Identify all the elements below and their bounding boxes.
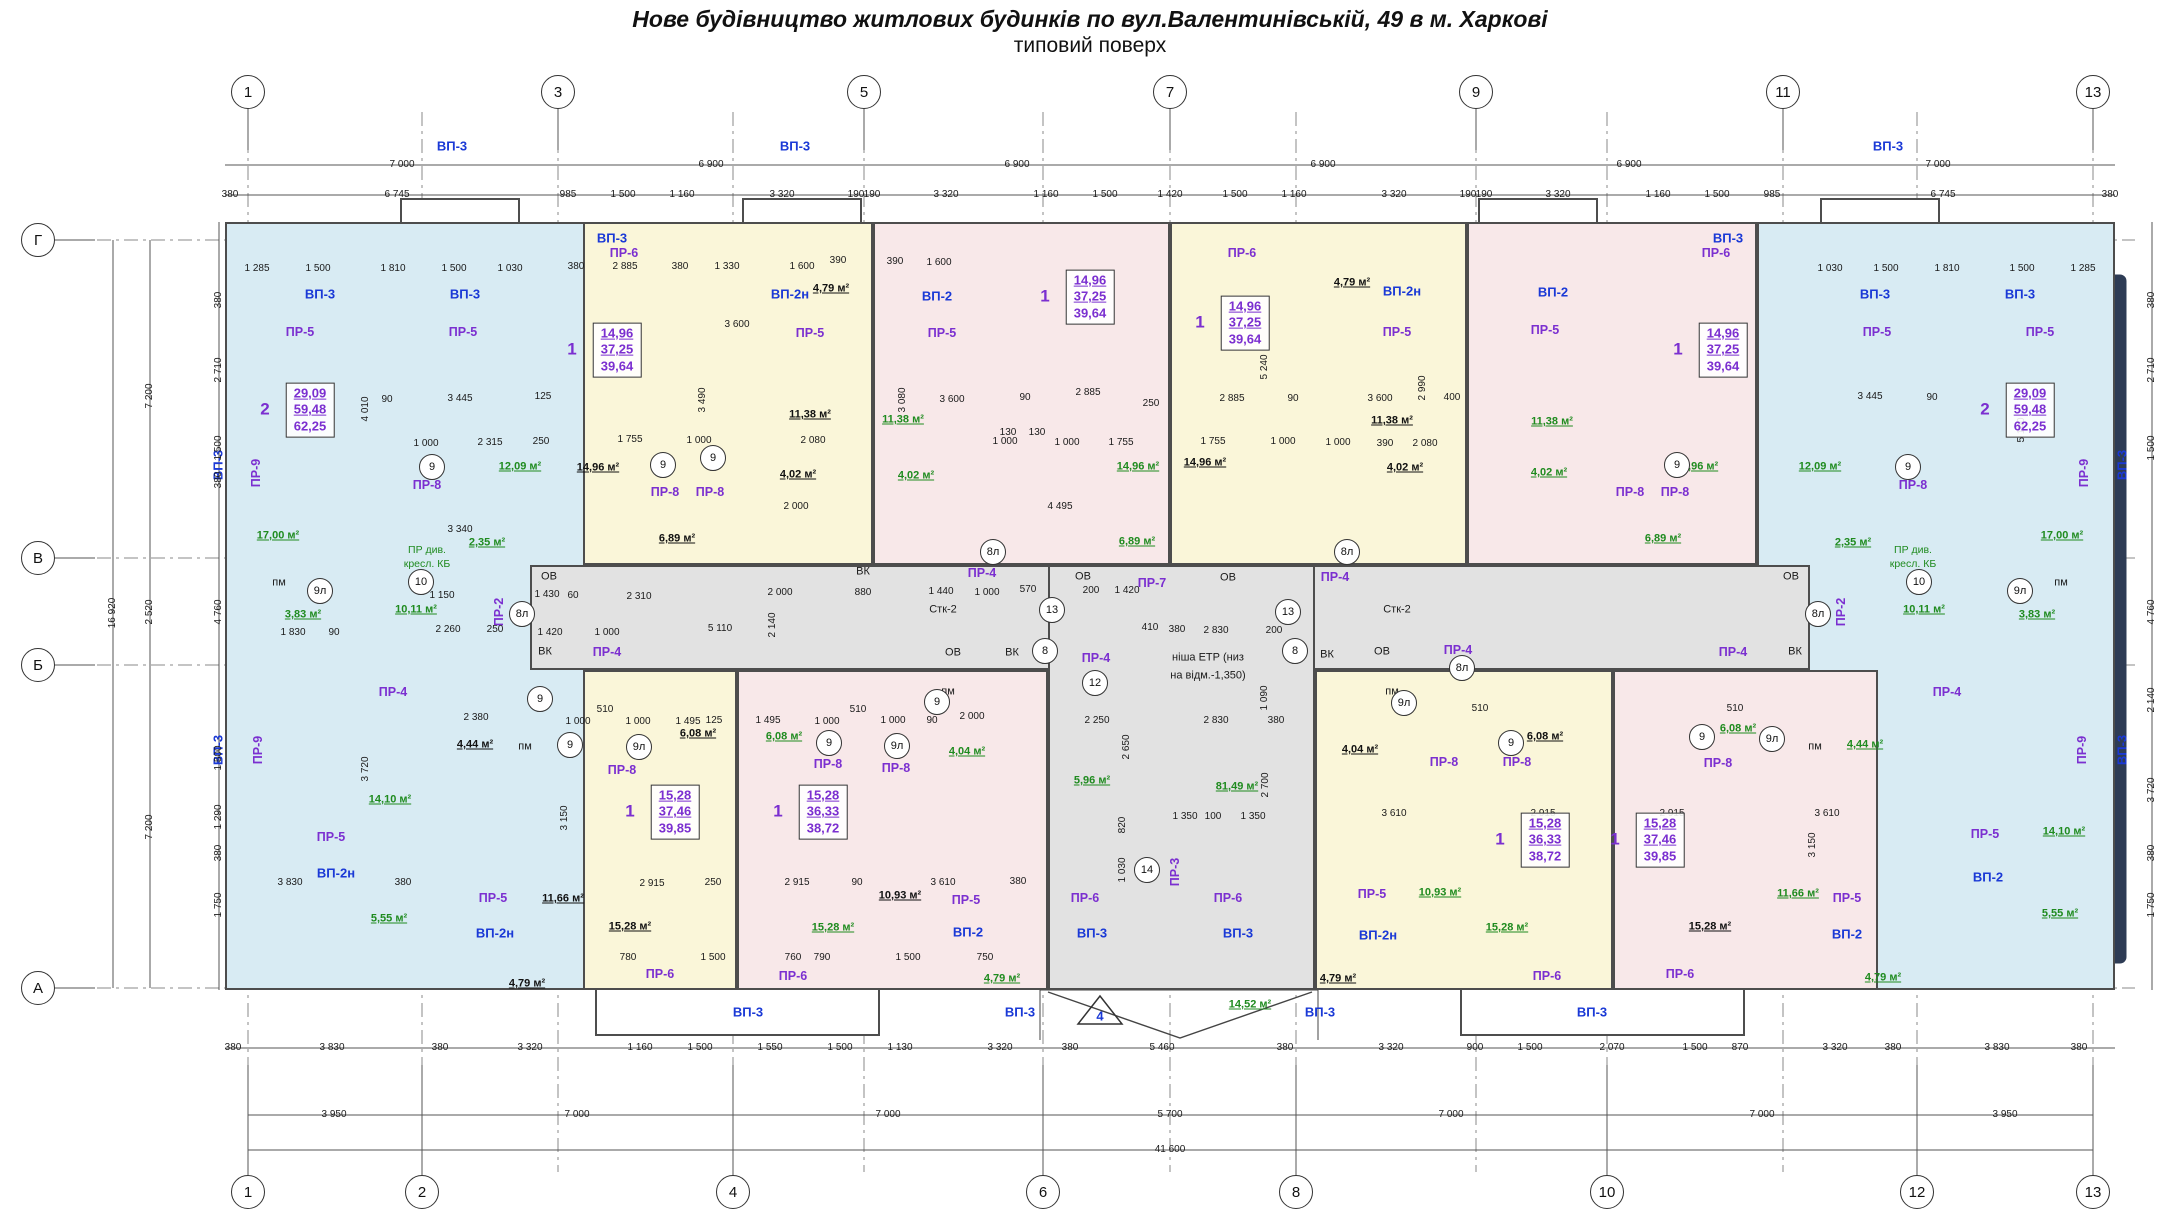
dimension-label: 1 000 (686, 436, 711, 446)
dimension-label: 130 (1029, 428, 1046, 438)
room-area-label: 11,38 м² (1371, 416, 1413, 427)
axis-bubble-top: 9 (1459, 75, 1493, 109)
apartment-rooms-count: 1 (1195, 313, 1204, 333)
room-area-label: 3,83 м² (285, 610, 321, 621)
door-code-label: ПР-8 (1503, 756, 1531, 769)
dimension-label: 985 (1764, 190, 1781, 200)
dimension-label: 510 (1727, 704, 1744, 714)
dimension-label: 1 160 (1645, 190, 1670, 200)
axis-bubble-bottom: 6 (1026, 1175, 1060, 1209)
dimension-label: 5 110 (708, 624, 732, 634)
reference-circle: 10 (408, 569, 434, 595)
dimension-label: 1 160 (1033, 190, 1058, 200)
apartment-area-value: 37,25 (1074, 289, 1107, 305)
dimension-label: 3 600 (939, 395, 964, 405)
axis-bubble-bottom: 4 (716, 1175, 750, 1209)
apartment-area-box: 115,2837,4639,85 (1636, 813, 1685, 868)
dimension-label: 250 (705, 878, 722, 888)
bay-window (742, 198, 862, 224)
dimension-label: 760 (785, 953, 802, 963)
axis-bubble-top: 7 (1153, 75, 1187, 109)
dimension-label: 1 330 (714, 262, 739, 272)
dimension-label: 7 000 (389, 160, 414, 170)
dimension-label: 2 830 (1203, 716, 1228, 726)
dimension-label: 1 600 (926, 258, 951, 268)
dimension-label: 7 200 (145, 383, 155, 408)
apartment-area-value: 38,72 (807, 820, 840, 836)
dimension-label: 6 900 (1004, 160, 1029, 170)
dimension-label: 1 500 (1517, 1043, 1542, 1053)
dimension-label: 380 (1062, 1043, 1079, 1053)
window-code-label: ВП-3 (2116, 735, 2129, 765)
door-code-label: ПР-4 (1719, 646, 1747, 659)
reference-circle: 13 (1039, 597, 1065, 623)
dimension-label: 3 610 (1814, 809, 1839, 819)
dimension-label: 1 495 (675, 717, 700, 727)
dimension-label: 3 150 (1808, 832, 1818, 857)
dimension-label: 1 440 (928, 587, 953, 597)
dimension-label: 5 460 (1149, 1043, 1174, 1053)
dimension-label: 390 (887, 257, 904, 267)
dimension-label: 3 320 (933, 190, 958, 200)
dimension-label: 1 500 (895, 953, 920, 963)
feature-label: ВК (538, 647, 552, 658)
bay-window (1478, 198, 1598, 224)
dimension-label: 6 900 (1310, 160, 1335, 170)
apartment-area-box: 114,9637,2539,64 (1066, 270, 1115, 325)
dimension-label: 6 900 (1616, 160, 1641, 170)
apartment-rooms-count: 1 (1673, 340, 1682, 360)
dimension-label: 5 240 (1260, 354, 1270, 379)
dimension-label: 390 (1377, 439, 1394, 449)
window-code-label: ВП-3 (733, 1006, 763, 1019)
dimension-label: 2 710 (214, 357, 224, 382)
window-code-label: ВП-3 (1077, 927, 1107, 940)
dimension-label: 1 350 (1172, 812, 1197, 822)
door-code-label: ПР-4 (1321, 571, 1349, 584)
dimension-label: 1 500 (1092, 190, 1117, 200)
dimension-label: 1 755 (1200, 437, 1225, 447)
apartment-area-box: 114,9637,2539,64 (593, 323, 642, 378)
dimension-label: 1 500 (441, 264, 466, 274)
room-area-label: 3,83 м² (2019, 610, 2055, 621)
reference-circle: 9л (1391, 690, 1417, 716)
dimension-label: 250 (1143, 399, 1160, 409)
dimension-label: 3 340 (447, 525, 472, 535)
dimension-label: 6 745 (1930, 190, 1955, 200)
apartment-top (1467, 222, 1757, 565)
dimension-label: 190 (848, 190, 865, 200)
dimension-label: 380 (214, 472, 224, 489)
door-code-label: ПР-8 (651, 486, 679, 499)
dimension-label: 1 000 (814, 717, 839, 727)
room-area-label: 4,02 м² (780, 470, 816, 481)
room-area-label: 4,44 м² (1847, 740, 1883, 751)
apartment-area-value: 14,96 (1074, 273, 1107, 289)
dimension-label: 3 320 (987, 1043, 1012, 1053)
axis-bubble-top: 13 (2076, 75, 2110, 109)
room-area-label: 5,55 м² (2042, 909, 2078, 920)
door-code-label: ПР-8 (814, 758, 842, 771)
room-area-label: 6,08 м² (766, 732, 802, 743)
apartment-area-value: 59,48 (2014, 402, 2047, 418)
dimension-label: 6 745 (384, 190, 409, 200)
dimension-label: 2 700 (1261, 772, 1271, 797)
dimension-label: 410 (1142, 623, 1159, 633)
dimension-label: 1 160 (1281, 190, 1306, 200)
reference-circle: 9л (307, 578, 333, 604)
axis-bubble-top: 11 (1766, 75, 1800, 109)
feature-label: пм (272, 578, 286, 589)
reference-circle: 10 (1906, 569, 1932, 595)
room-area-label: 4,79 м² (509, 979, 545, 990)
dimension-label: 380 (222, 190, 239, 200)
dimension-label: 3 320 (1822, 1043, 1847, 1053)
entrance-number: 4 (1096, 1009, 1103, 1024)
room-area-label: 14,96 м² (1117, 462, 1159, 473)
dimension-label: 3 610 (1381, 809, 1406, 819)
dimension-label: 510 (597, 705, 614, 715)
dimension-label: 3 950 (321, 1110, 346, 1120)
dimension-label: 1 810 (1934, 264, 1959, 274)
axis-bubble-left: В (21, 541, 55, 575)
dimension-label: 985 (560, 190, 577, 200)
door-code-label: ПР-5 (286, 326, 314, 339)
dimension-label: 2 710 (2147, 357, 2157, 382)
dimension-label: 1 500 (1704, 190, 1729, 200)
floor-plan-drawing: Нове будівництво житлових будинків по ву… (0, 0, 2180, 1222)
window-code-label: ВП-3 (437, 140, 467, 153)
dimension-label: 1 500 (1873, 264, 1898, 274)
dimension-label: 380 (432, 1043, 449, 1053)
window-code-label: ВП-2н (1359, 929, 1397, 942)
door-code-label: ПР-6 (779, 970, 807, 983)
door-code-label: ПР-8 (696, 486, 724, 499)
dimension-label: 790 (814, 953, 831, 963)
apartment-rooms-count: 1 (1040, 287, 1049, 307)
dimension-label: 1 500 (2009, 264, 2034, 274)
dimension-label: 125 (706, 716, 723, 726)
room-area-label: 81,49 м² (1216, 782, 1258, 793)
window-code-label: ВП-2 (1832, 928, 1862, 941)
dimension-label: 1 500 (700, 953, 725, 963)
dimension-label: 190 (1460, 190, 1477, 200)
reference-circle: 13 (1275, 599, 1301, 625)
dimension-label: 2 000 (767, 588, 792, 598)
room-area-label: 14,10 м² (2043, 827, 2085, 838)
dimension-label: 510 (1472, 704, 1489, 714)
dimension-label: 4 495 (1047, 502, 1072, 512)
reference-circle: 8л (1805, 601, 1831, 627)
room-area-label: 4,04 м² (949, 747, 985, 758)
dimension-label: 3 080 (898, 387, 908, 412)
reference-circle: 9 (1895, 454, 1921, 480)
dimension-label: 3 490 (698, 387, 708, 412)
dimension-label: 2 080 (800, 436, 825, 446)
dimension-label: 380 (1885, 1043, 1902, 1053)
dimension-label: 1 420 (1157, 190, 1182, 200)
dimension-label: 3 320 (1545, 190, 1570, 200)
apartment-top (583, 222, 873, 565)
door-code-label: ПР-8 (1430, 756, 1458, 769)
dimension-label: 380 (1010, 877, 1027, 887)
reference-circle: 12 (1082, 670, 1108, 696)
door-code-label: ПР-2 (493, 598, 506, 626)
feature-label: пм (1808, 742, 1822, 753)
dimension-label: 880 (855, 588, 872, 598)
reference-circle: 8л (509, 601, 535, 627)
dimension-label: 41 600 (1155, 1145, 1186, 1155)
dimension-label: 90 (1019, 393, 1030, 403)
dimension-label: 1 285 (2070, 264, 2095, 274)
window-code-label: ВП-3 (1223, 927, 1253, 940)
room-area-label: 15,28 м² (1486, 923, 1528, 934)
reference-circle: 9 (419, 454, 445, 480)
dimension-label: 125 (535, 392, 552, 402)
apartment-area-value: 36,33 (1529, 832, 1562, 848)
dimension-label: 2 915 (784, 878, 809, 888)
dimension-label: 3 830 (319, 1043, 344, 1053)
room-area-label: 12,09 м² (499, 462, 541, 473)
dimension-label: 2 380 (463, 713, 488, 723)
apartment-area-value: 14,96 (1229, 299, 1262, 315)
dimension-label: 2 080 (1412, 439, 1437, 449)
bay-window (1820, 198, 1940, 224)
reference-circle: 9 (700, 445, 726, 471)
dimension-label: 1 755 (617, 435, 642, 445)
dimension-label: 90 (1926, 393, 1937, 403)
apartment-area-value: 15,28 (807, 788, 840, 804)
dimension-label: 3 320 (517, 1043, 542, 1053)
axis-bubble-bottom: 1 (231, 1175, 265, 1209)
room-area-label: 5,96 м² (1074, 776, 1110, 787)
dimension-label: 1 030 (497, 264, 522, 274)
apartment-rooms-count: 2 (1980, 400, 1989, 420)
dimension-label: 820 (1118, 817, 1128, 834)
apartment-area-value: 39,64 (1074, 305, 1107, 321)
apartment-area-value: 36,33 (807, 804, 840, 820)
dimension-label: 400 (1444, 393, 1461, 403)
dimension-label: 1 000 (1054, 438, 1079, 448)
feature-label: ОВ (1075, 572, 1091, 583)
note-label: кресл. КБ (404, 559, 451, 570)
reference-circle: 8л (1334, 539, 1360, 565)
note-label: ПР див. (408, 545, 446, 556)
window-code-label: ВП-3 (2005, 288, 2035, 301)
apartment-area-value: 62,25 (2014, 418, 2047, 434)
dimension-label: 90 (381, 395, 392, 405)
dimension-label: 1 160 (627, 1043, 652, 1053)
dimension-label: 90 (851, 878, 862, 888)
dimension-label: 1 130 (887, 1043, 912, 1053)
apartment-area-value: 14,96 (601, 326, 634, 342)
dimension-label: 2 140 (2147, 687, 2157, 712)
apartment-area-value: 37,25 (601, 342, 634, 358)
dimension-label: 380 (2102, 190, 2119, 200)
room-area-label: 6,89 м² (1119, 537, 1155, 548)
reference-circle: 9 (527, 686, 553, 712)
reference-circle: 9 (1689, 724, 1715, 750)
dimension-label: 380 (1277, 1043, 1294, 1053)
window-code-label: ВП-2 (1538, 286, 1568, 299)
dimension-label: 190 (864, 190, 881, 200)
apartment-area-value: 39,64 (1707, 358, 1740, 374)
apartment-area-box: 115,2837,4639,85 (651, 785, 700, 840)
room-area-label: 11,38 м² (1531, 417, 1573, 428)
axis-bubble-top: 5 (847, 75, 881, 109)
axis-bubble-bottom: 10 (1590, 1175, 1624, 1209)
door-code-label: ПР-5 (449, 326, 477, 339)
window-code-label: ВП-2н (317, 867, 355, 880)
room-area-label: 4,79 м² (984, 974, 1020, 985)
room-area-label: 14,52 м² (1229, 1000, 1271, 1011)
room-area-label: 4,02 м² (898, 471, 934, 482)
dimension-label: 1 420 (1114, 586, 1139, 596)
room-area-label: 15,28 м² (812, 923, 854, 934)
note-label: кресл. КБ (1890, 559, 1937, 570)
axis-bubble-top: 1 (231, 75, 265, 109)
dimension-label: 380 (1268, 716, 1285, 726)
reference-circle: 8 (1032, 638, 1058, 664)
dimension-label: 380 (568, 262, 585, 272)
dimension-label: 2 520 (145, 599, 155, 624)
dimension-label: 2 915 (639, 879, 664, 889)
dimension-label: 1 500 (305, 264, 330, 274)
room-area-label: 10,93 м² (1419, 888, 1461, 899)
dimension-label: 2 990 (1418, 375, 1428, 400)
door-code-label: ПР-6 (1702, 247, 1730, 260)
dimension-label: 380 (1169, 625, 1186, 635)
dimension-label: 6 900 (698, 160, 723, 170)
apartment-area-value: 39,85 (659, 820, 692, 836)
reference-circle: 9л (1759, 726, 1785, 752)
dimension-label: 250 (533, 437, 550, 447)
apartment-area-box: 114,9637,2539,64 (1699, 323, 1748, 378)
dimension-label: 1 000 (594, 628, 619, 638)
door-code-label: ПР-3 (1169, 858, 1182, 886)
dimension-label: 2 885 (1219, 394, 1244, 404)
reference-circle: 9 (557, 732, 583, 758)
apartment-rooms-count: 1 (1495, 830, 1504, 850)
window-code-label: ВП-3 (1005, 1006, 1035, 1019)
axis-bubble-left: Г (21, 223, 55, 257)
window-code-label: ВП-3 (780, 140, 810, 153)
dimension-label: 2 250 (1084, 716, 1109, 726)
reference-circle: 9 (816, 730, 842, 756)
door-code-label: ПР-6 (1228, 247, 1256, 260)
dimension-label: 2 260 (435, 625, 460, 635)
room-area-label: 14,10 м² (369, 795, 411, 806)
apartment-rooms-count: 1 (773, 802, 782, 822)
feature-label: на відм.-1,350) (1170, 671, 1245, 682)
door-code-label: ПР-6 (1533, 970, 1561, 983)
window-code-label: ВП-3 (1577, 1006, 1607, 1019)
axis-bubble-bottom: 13 (2076, 1175, 2110, 1209)
room-area-label: 4,44 м² (457, 740, 493, 751)
dimension-label: 2 885 (612, 262, 637, 272)
dimension-label: 1 810 (380, 264, 405, 274)
window-code-label: ВП-2 (953, 926, 983, 939)
dimension-label: 2 310 (626, 592, 651, 602)
room-area-label: 11,66 м² (542, 894, 584, 905)
dimension-label: 570 (1020, 585, 1037, 595)
dimension-label: 3 150 (560, 805, 570, 830)
room-area-label: 6,08 м² (680, 729, 716, 740)
dimension-label: 130 (1000, 428, 1017, 438)
door-code-label: ПР-8 (1704, 757, 1732, 770)
feature-label: ВК (856, 567, 870, 578)
dimension-label: 2 000 (959, 712, 984, 722)
dimension-label: 3 445 (1857, 392, 1882, 402)
dimension-label: 190 (1476, 190, 1493, 200)
room-area-label: 10,11 м² (395, 605, 437, 616)
feature-label: ОВ (945, 648, 961, 659)
dimension-label: 7 000 (1749, 1110, 1774, 1120)
room-area-label: 15,28 м² (609, 922, 651, 933)
door-code-label: ПР-6 (646, 968, 674, 981)
dimension-label: 750 (977, 953, 994, 963)
door-code-label: ПР-2 (1835, 598, 1848, 626)
door-code-label: ПР-9 (252, 736, 265, 764)
dimension-label: 3 720 (361, 756, 371, 781)
dimension-label: 1 000 (625, 717, 650, 727)
door-code-label: ПР-8 (1616, 486, 1644, 499)
window-code-label: ВП-3 (2116, 450, 2129, 480)
door-code-label: ПР-5 (1833, 892, 1861, 905)
room-area-label: 2,35 м² (1835, 538, 1871, 549)
room-area-label: 17,00 м² (2041, 531, 2083, 542)
feature-label: ніша ЕТР (низ (1172, 653, 1244, 664)
dimension-label: 90 (926, 716, 937, 726)
window-code-label: ВП-3 (1305, 1006, 1335, 1019)
room-area-label: 6,89 м² (659, 534, 695, 545)
dimension-label: 90 (328, 628, 339, 638)
feature-label: ВК (1788, 647, 1802, 658)
room-area-label: 4,79 м² (813, 284, 849, 295)
dimension-label: 2 885 (1075, 388, 1100, 398)
dimension-label: 3 830 (277, 878, 302, 888)
feature-label: Стк-2 (1383, 605, 1411, 616)
bay-window (400, 198, 520, 224)
dimension-label: 1 755 (1108, 438, 1133, 448)
dimension-label: 90 (1287, 394, 1298, 404)
room-area-label: 14,96 м² (577, 463, 619, 474)
window-code-label: ВП-3 (305, 288, 335, 301)
dimension-label: 2 650 (1122, 734, 1132, 759)
window-code-label: ВП-3 (1873, 140, 1903, 153)
dimension-label: 1 000 (413, 439, 438, 449)
dimension-label: 390 (830, 256, 847, 266)
apartment-area-value: 37,46 (659, 804, 692, 820)
room-area-label: 6,08 м² (1527, 732, 1563, 743)
room-area-label: 6,08 м² (1720, 724, 1756, 735)
feature-label: ОВ (1783, 572, 1799, 583)
door-code-label: ПР-4 (1082, 652, 1110, 665)
feature-label: ОВ (541, 572, 557, 583)
dimension-label: 1 830 (280, 628, 305, 638)
door-code-label: ПР-5 (1531, 324, 1559, 337)
dimension-label: 3 720 (2147, 777, 2157, 802)
dimension-label: 4 010 (361, 396, 371, 421)
room-area-label: 4,79 м² (1865, 973, 1901, 984)
room-area-label: 4,02 м² (1387, 463, 1423, 474)
dimension-label: 3 610 (930, 878, 955, 888)
door-code-label: ПР-5 (952, 894, 980, 907)
axis-bubble-bottom: 12 (1900, 1175, 1934, 1209)
window-code-label: ВП-2 (1973, 871, 2003, 884)
feature-label: ОВ (1220, 573, 1236, 584)
room-area-label: 12,09 м² (1799, 462, 1841, 473)
